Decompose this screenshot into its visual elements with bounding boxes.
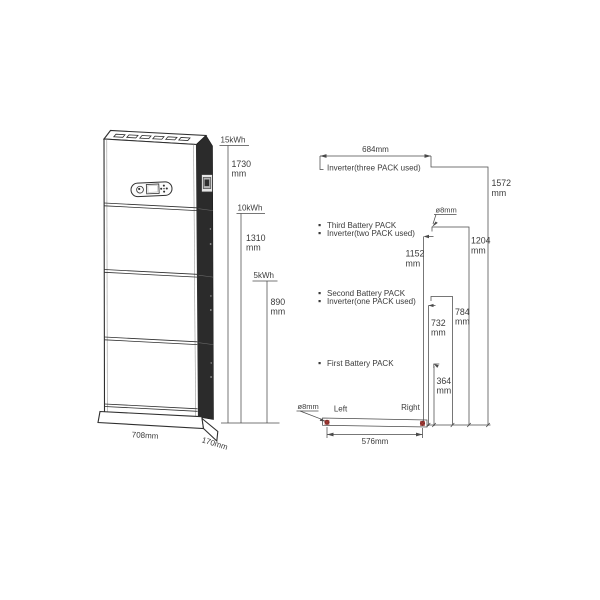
height-unit-784: mm [455, 317, 470, 327]
hole-diameter-bottom-label: ø8mm [298, 402, 319, 411]
height-unit-1152: mm [406, 259, 421, 269]
height-value-1152: 1152 [406, 249, 425, 259]
height-unit-364: mm [437, 386, 452, 396]
height-value-732: 732 [431, 318, 446, 328]
width-dimension-label: 708mm [132, 430, 159, 440]
total-height-unit: mm [492, 188, 507, 198]
inverter-one-label: Inverter(one PACK used) [327, 297, 416, 306]
capacity-label-10kwh: 10kWh [238, 204, 263, 213]
side-connector [202, 175, 213, 193]
mounting-layout-view: 684mm 1572 mm Inverter(three PACK used) … [297, 145, 512, 446]
height-unit-1204: mm [471, 246, 486, 256]
height-unit-732: mm [431, 328, 446, 338]
height-value-1310: 1310 [246, 233, 266, 243]
hole-diameter-top-label: ø8mm [436, 206, 457, 215]
capacity-label-5kwh: 5kWh [254, 271, 274, 280]
unit-front-face [104, 139, 199, 417]
height-value-1204: 1204 [471, 236, 491, 246]
height-unit-1310: mm [246, 243, 261, 253]
battery-stack-dimension-diagram: 708mm 170mm 15kWh 1730 mm 10kWh 1310 mm … [0, 0, 600, 600]
total-height-value: 1572 [492, 178, 512, 188]
first-pack-label: First Battery PACK [327, 359, 394, 368]
capacity-dimensions: 15kWh 1730 mm 10kWh 1310 mm 5kWh 890 mm [220, 136, 286, 424]
top-width-label: 684mm [362, 145, 389, 154]
diagram-page: 708mm 170mm 15kWh 1730 mm 10kWh 1310 mm … [0, 0, 600, 600]
top-left-anchor-mark [320, 156, 324, 170]
height-value-364: 364 [437, 376, 452, 386]
bullet-marker [319, 300, 321, 302]
hole-callout-arrow [432, 222, 438, 228]
anchor-hole-right [420, 421, 425, 426]
bullet-marker [319, 232, 321, 234]
display-panel [131, 182, 173, 197]
height-unit-890: mm [271, 307, 286, 317]
height-value-1730: 1730 [232, 159, 252, 169]
inverter-two-label: Inverter(two PACK used) [327, 229, 415, 238]
floor-bracket-bar [323, 418, 428, 427]
left-hole-label: Left [334, 405, 348, 414]
bottom-width-label: 576mm [362, 437, 389, 446]
unit-front-view: 708mm 170mm [98, 131, 229, 452]
right-hole-label: Right [401, 403, 420, 412]
bullet-marker [319, 292, 321, 294]
bullet-marker [319, 362, 321, 364]
bullet-marker [319, 224, 321, 226]
level1-label: Inverter(three PACK used) [327, 164, 421, 173]
height-value-784: 784 [455, 307, 470, 317]
height-value-890: 890 [271, 297, 286, 307]
height-unit-1730: mm [232, 169, 247, 179]
anchor-hole-left [324, 420, 329, 425]
capacity-label-15kwh: 15kWh [221, 136, 246, 145]
